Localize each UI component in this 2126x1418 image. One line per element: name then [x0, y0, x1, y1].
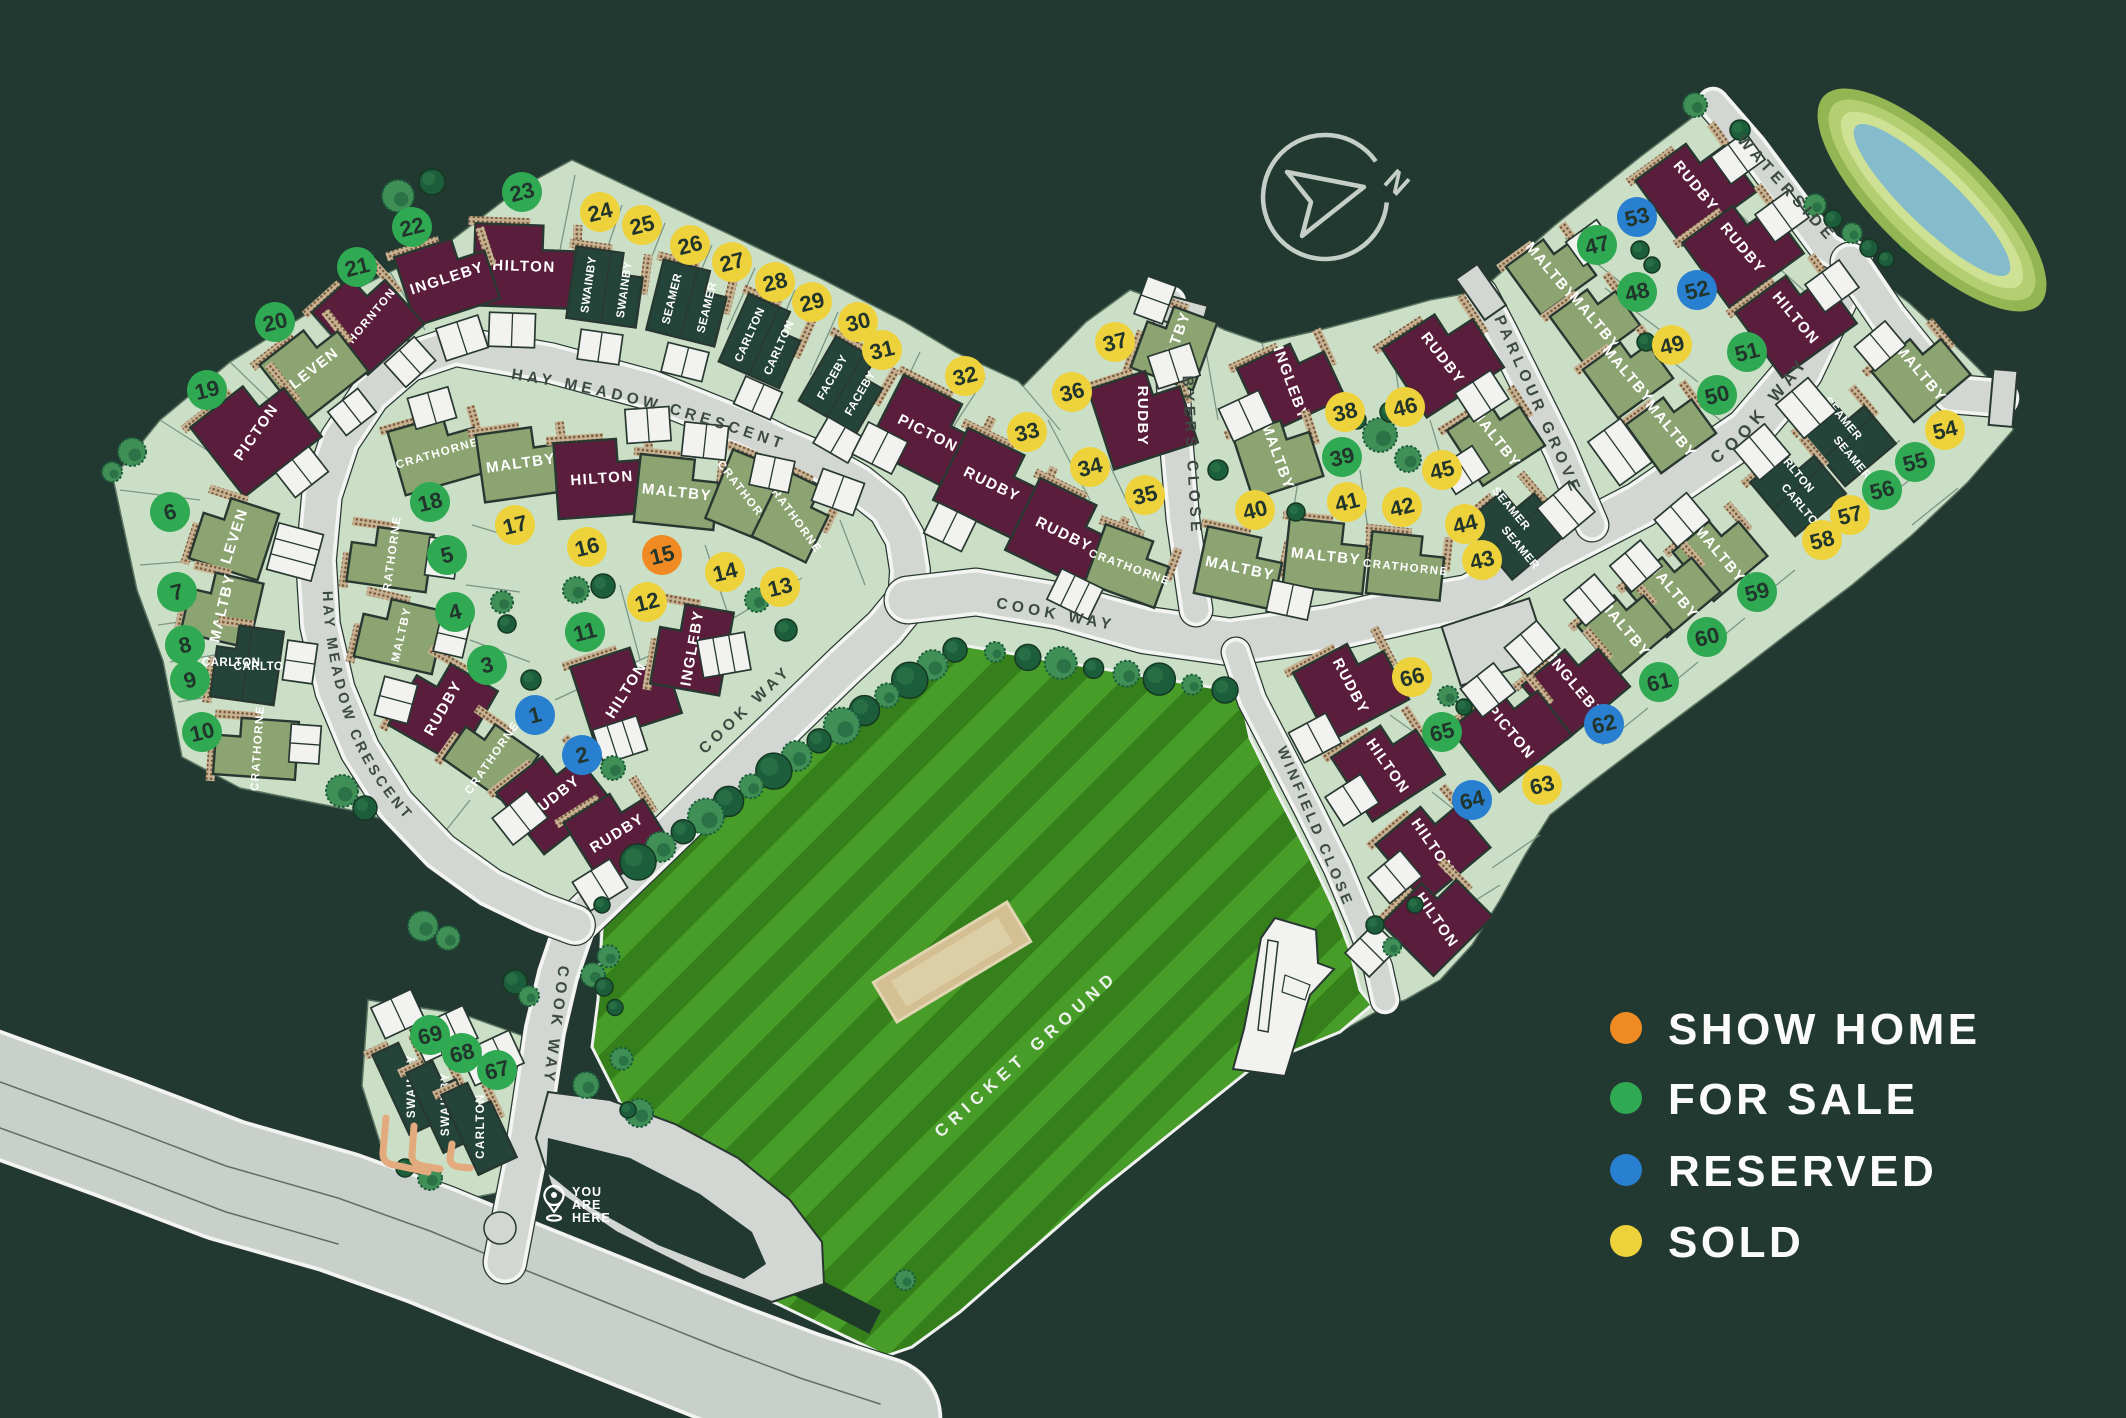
svg-text:SOLD: SOLD	[1668, 1218, 1804, 1267]
svg-text:FOR SALE: FOR SALE	[1668, 1075, 1918, 1124]
svg-text:HILTON: HILTON	[492, 257, 556, 276]
svg-text:HERE: HERE	[572, 1211, 611, 1225]
svg-text:RESERVED: RESERVED	[1668, 1147, 1937, 1196]
svg-text:RUDBY: RUDBY	[1134, 386, 1151, 447]
svg-text:CARLTON: CARLTON	[475, 1093, 487, 1159]
svg-text:SHOW HOME: SHOW HOME	[1668, 1005, 1981, 1054]
svg-text:YOU: YOU	[572, 1185, 602, 1199]
svg-text:ARE: ARE	[572, 1198, 601, 1212]
